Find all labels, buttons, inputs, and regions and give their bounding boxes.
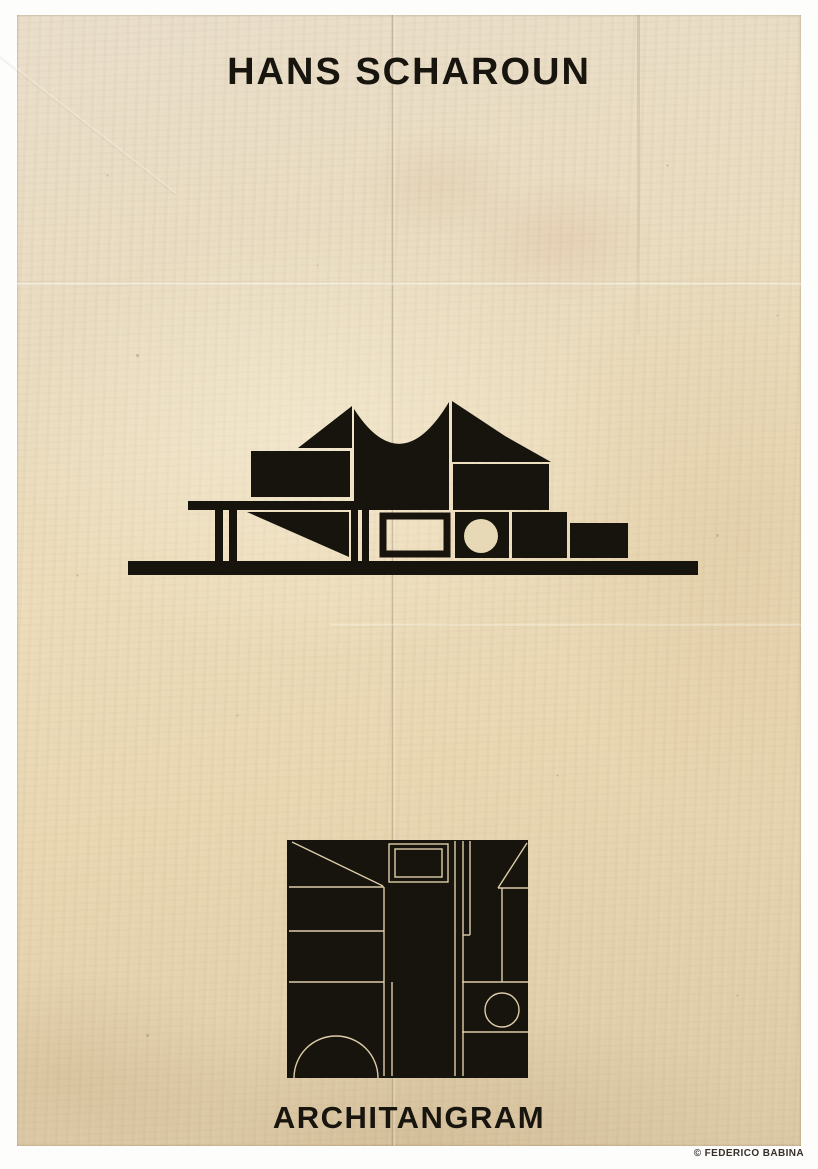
mid-right-block [512, 512, 567, 558]
roof-left-wing [298, 406, 352, 448]
roof-right-wing [452, 401, 551, 462]
building-illustration [128, 401, 698, 575]
framed-window-square [383, 516, 447, 554]
piloti-leg [215, 510, 223, 561]
wedge-ramp [247, 512, 349, 557]
low-right-block [570, 523, 628, 558]
concave-tent-roof-hall [354, 402, 449, 510]
tangram-illustration [287, 840, 528, 1078]
tangram-square [287, 840, 528, 1078]
piloti-leg [362, 510, 369, 561]
piloti-leg [351, 510, 358, 561]
artist-credit: © FEDERICO BABINA [694, 1148, 804, 1159]
upper-right-block [453, 464, 549, 510]
poster-illustrations [0, 0, 818, 1169]
porthole-circle [464, 519, 498, 553]
upper-left-block [251, 451, 350, 497]
piloti-leg [229, 510, 237, 561]
ground-line [128, 561, 698, 575]
page-background: HANS SCHAROUN ARCHITANGRAM [0, 0, 818, 1169]
